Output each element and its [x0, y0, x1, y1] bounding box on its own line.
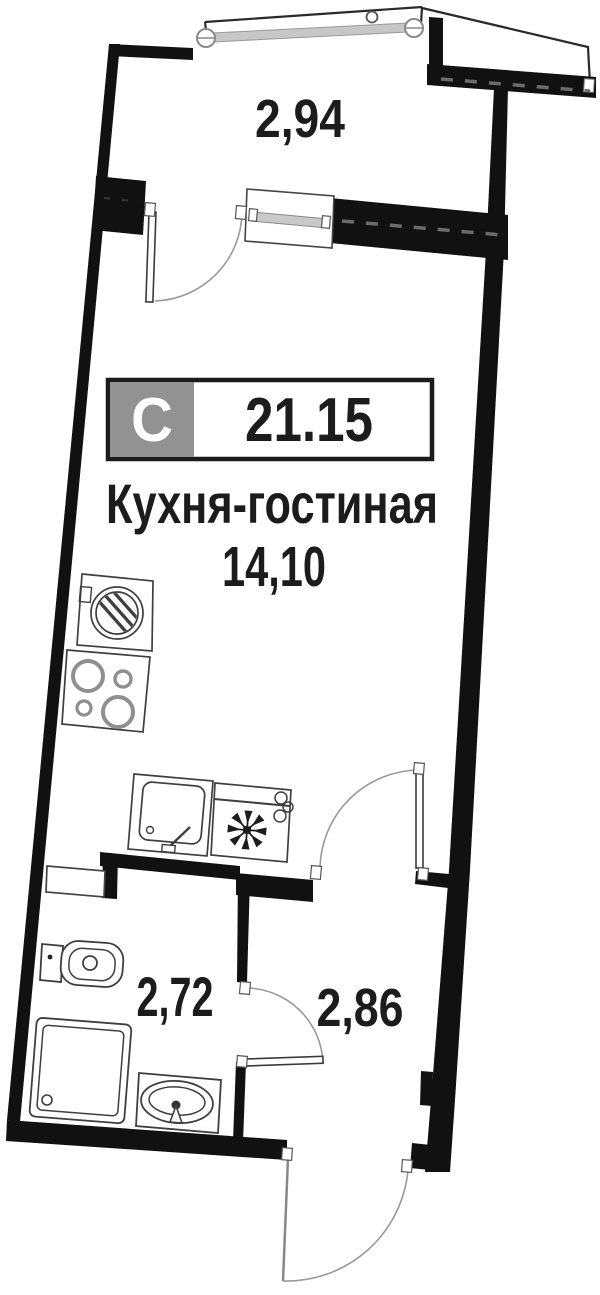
- svg-text:С: С: [131, 386, 173, 455]
- svg-text:2,94: 2,94: [255, 89, 345, 149]
- svg-text:14,10: 14,10: [222, 535, 326, 599]
- svg-text:21.15: 21.15: [245, 386, 373, 455]
- svg-text:Кухня-гостиная: Кухня-гостиная: [106, 472, 438, 535]
- svg-text:2,86: 2,86: [317, 978, 404, 1038]
- svg-text:2,72: 2,72: [137, 965, 214, 1028]
